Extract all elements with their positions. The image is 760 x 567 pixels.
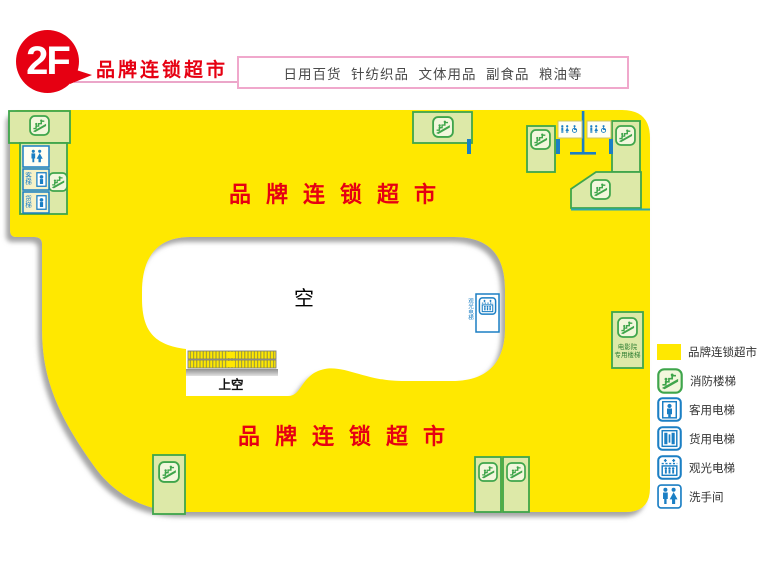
escalator xyxy=(186,351,278,376)
legend-item-area: 品牌连锁超市 xyxy=(657,337,759,366)
fire-stairs-icon xyxy=(159,462,179,482)
floor-badge: 2F xyxy=(16,30,79,93)
fire-stairs-icon xyxy=(479,463,497,481)
floor-badge-label: 2F xyxy=(26,39,69,84)
freight-elevator-icon xyxy=(657,426,682,451)
void-upper-label: 上空 xyxy=(218,377,243,392)
toilet-box xyxy=(23,146,49,167)
legend-item-sightseeing-elevator: 观光电梯 xyxy=(657,453,759,482)
page-title: 品牌连锁超市 xyxy=(96,55,228,82)
category-list: 日用百货 针纺织品 文体用品 副食品 粮油等 xyxy=(283,63,582,83)
sightseeing-elevator-label: 观光电梯 xyxy=(467,298,474,322)
legend-item-toilet: 洗手间 xyxy=(657,482,759,511)
floor-directory-page: 客梯 货梯 观光电梯 上空 空 电影院 专用楼梯 品牌连锁超市 品 xyxy=(0,0,760,567)
sightseeing-elevator-icon xyxy=(657,455,682,480)
freight-elevator-icon xyxy=(37,196,46,210)
legend-item-fire-stairs: 消防楼梯 xyxy=(657,366,759,395)
cinema-stairs-label: 电影院 xyxy=(618,342,638,351)
fire-stairs-icon xyxy=(531,130,550,149)
fire-stairs-icon xyxy=(507,463,525,481)
category-box: 日用百货 针纺织品 文体用品 副食品 粮油等 xyxy=(237,56,629,89)
passenger-elevator-icon xyxy=(657,397,682,422)
fire-stairs-icon xyxy=(49,173,67,191)
legend: 品牌连锁超市 消防楼梯 客用电梯 货用电梯 观光电梯 洗手间 xyxy=(657,337,759,511)
fire-stairs-icon xyxy=(616,126,635,145)
fire-stairs-icon xyxy=(657,368,683,394)
fire-stairs-icon xyxy=(433,117,453,137)
legend-item-freight-elevator: 货用电梯 xyxy=(657,424,759,453)
legend-item-passenger-elevator: 客用电梯 xyxy=(657,395,759,424)
sightseeing-elevator-icon xyxy=(479,298,495,314)
cinema-stairs-label: 专用楼梯 xyxy=(615,350,642,359)
area-swatch xyxy=(657,344,681,360)
area-label-top: 品牌连锁超市 xyxy=(229,182,451,207)
area-label-bottom: 品牌连锁超市 xyxy=(238,424,460,449)
fire-stairs-icon xyxy=(30,116,49,135)
void-label: 空 xyxy=(294,287,314,310)
fire-stairs-icon xyxy=(591,180,610,199)
toilet-icon xyxy=(657,484,682,509)
passenger-elevator-icon xyxy=(37,173,46,187)
fire-stairs-icon xyxy=(618,318,637,337)
